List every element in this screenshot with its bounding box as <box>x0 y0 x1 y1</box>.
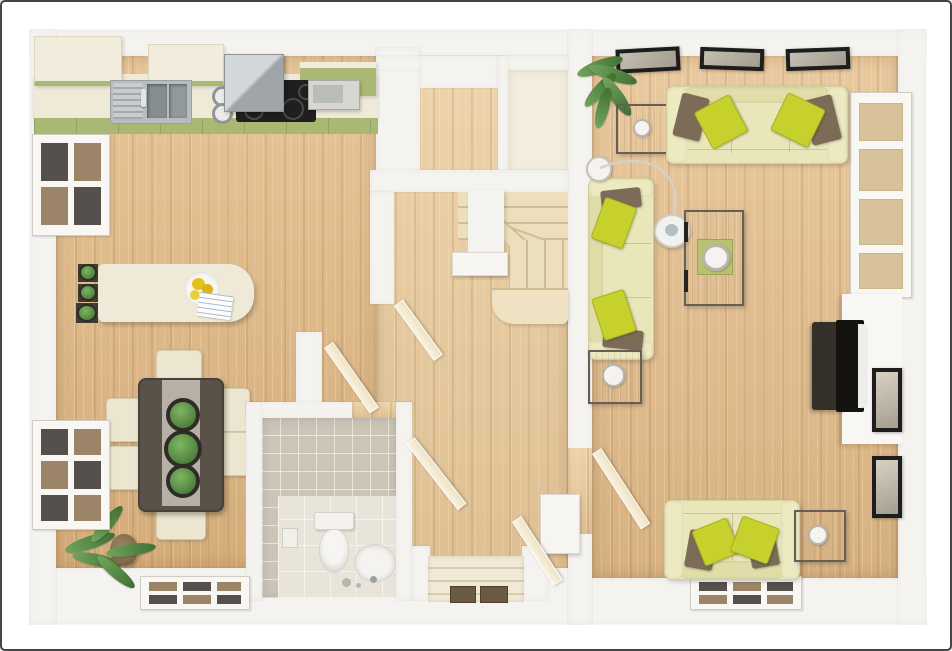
microwave-door <box>313 85 343 103</box>
window-pane <box>41 461 68 489</box>
dining-bottom-window <box>140 576 250 610</box>
window-pane <box>699 595 727 604</box>
window-pane <box>183 582 211 591</box>
door-mat-2 <box>480 586 508 603</box>
basin-faucet <box>370 576 377 583</box>
island-plant-2 <box>79 284 97 301</box>
stair-treads-right <box>510 240 568 292</box>
window-pane <box>74 429 101 455</box>
side-table-mug <box>808 525 828 545</box>
window-pane <box>74 495 101 521</box>
toilet-cistern <box>314 512 354 530</box>
extractor-hood <box>224 54 284 112</box>
picture-art <box>704 51 760 67</box>
window-pane <box>859 103 903 141</box>
arc-lamp-bulb <box>665 224 678 236</box>
storage-cupboard-floor <box>508 70 568 174</box>
island-planter-3 <box>76 303 98 323</box>
sink-bowl-2 <box>169 84 187 118</box>
window-pane <box>699 582 727 591</box>
window-pane <box>74 143 101 181</box>
window-pane <box>733 595 761 604</box>
window-pane <box>859 199 903 245</box>
stair-newel-rail <box>452 252 508 276</box>
window-pane <box>733 582 761 591</box>
wall-picture-top-2 <box>700 47 765 71</box>
side-table-bowl <box>602 364 625 387</box>
window-pane <box>41 495 68 521</box>
window-pane <box>74 187 101 225</box>
loveseat <box>664 500 800 580</box>
door-mat-1 <box>450 586 476 603</box>
dining-table <box>138 378 224 512</box>
table-plant-3 <box>166 464 200 498</box>
cupboard-wall <box>498 56 508 174</box>
window-pane <box>149 595 177 604</box>
window-pane <box>859 253 903 289</box>
microwave <box>308 80 360 110</box>
window-pane <box>217 582 241 591</box>
window-pane <box>183 595 211 604</box>
side-table-cup <box>633 119 651 137</box>
tray-bowl <box>702 244 730 271</box>
hall-console-radiator <box>540 494 580 554</box>
window-pane <box>149 582 177 591</box>
front-door-steps <box>428 556 524 602</box>
island-plant-1 <box>79 264 97 281</box>
window-pane <box>859 149 903 191</box>
dining-chair-left-2 <box>106 446 142 490</box>
wc-wall-right <box>396 402 412 600</box>
wall-picture-right-1 <box>872 368 902 432</box>
window-pane <box>41 143 68 181</box>
coffee-table <box>684 210 744 306</box>
papers <box>196 292 233 320</box>
table-plant-1 <box>166 398 200 432</box>
toilet-roll-holder <box>282 528 298 548</box>
island-planter-2 <box>78 284 98 302</box>
wall-picture-right-2 <box>872 456 902 518</box>
window-pane <box>767 582 793 591</box>
wc-wall-left <box>246 402 262 600</box>
kitchen-base-cabinets <box>34 118 378 134</box>
dining-chair-left-1 <box>106 398 142 442</box>
hall-landing-wall <box>420 56 498 88</box>
living-right-window <box>850 92 912 298</box>
stair-wall-left <box>370 192 394 304</box>
sink-bowl-1 <box>147 84 167 118</box>
drainer <box>113 83 143 119</box>
window-pane <box>41 187 68 225</box>
toilet-bowl <box>319 529 349 573</box>
floor-plan-render <box>0 0 952 651</box>
window-pane <box>767 595 793 604</box>
faucet <box>141 89 146 107</box>
table-end-cap <box>684 270 688 292</box>
sofa-arm-left <box>665 501 683 579</box>
dining-hall-wall <box>296 332 322 412</box>
toiletry-bottles <box>342 578 351 587</box>
wall-cabinet-left <box>34 36 122 86</box>
burner-3 <box>282 98 304 120</box>
seat-front-line <box>687 149 827 150</box>
island-planter-1 <box>78 264 98 282</box>
sink-unit <box>110 80 192 124</box>
window-pane <box>217 595 241 604</box>
picture-art <box>876 372 898 428</box>
dining-window <box>32 420 110 530</box>
wall-picture-top-3 <box>786 47 851 71</box>
table-end-cap <box>684 222 688 242</box>
window-pane <box>74 461 101 489</box>
tv-back-casing <box>858 324 868 408</box>
picture-art <box>876 460 898 514</box>
island-plant-3 <box>77 304 97 322</box>
stair-bottom-landing <box>492 288 568 324</box>
window-pane <box>41 429 68 455</box>
living-bottom-window <box>690 576 802 610</box>
picture-art <box>790 51 846 67</box>
stair-wall-top <box>370 170 568 192</box>
kitchen-window <box>32 134 110 236</box>
table-plant-2 <box>164 430 202 468</box>
